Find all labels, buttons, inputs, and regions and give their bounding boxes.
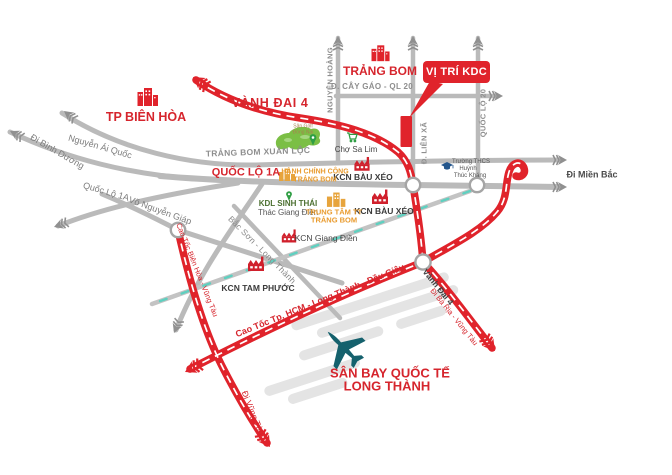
center-building-icon (327, 193, 345, 207)
place-label-kcn-giang-dien: KCN Giang Điền (295, 234, 358, 243)
school-label-line2: Huỳnh (459, 166, 476, 172)
city-icon-bien-hoa (138, 88, 159, 106)
road-label-nguyen-hoang: NGUYỄN HOÀNG (326, 47, 334, 113)
market-cart-icon (347, 133, 357, 142)
city-icon-trang-bom (372, 45, 390, 61)
place-label-trang-bom: TRẢNG BOM (343, 65, 417, 77)
road-label-vanh-dai-4-north: VÀNH ĐAI 4 (232, 97, 309, 110)
road-label-cay-gao: Đ. CÂY GÁO - QL 20 (331, 83, 413, 91)
place-label-tp-bien-hoa: TP BIÊN HÒA (106, 111, 186, 124)
place-label-hanh-chinh-line1: HÀNH CHÍNH CÔNG (281, 169, 348, 176)
school-label-line1: Trường THCS (452, 159, 490, 165)
factory-icon-tam-phuoc (248, 257, 264, 272)
airport-label-line2: LONG THÀNH (344, 380, 431, 393)
location-map: Nguyễn Ái Quốc Đi Bình Dương Quốc Lộ 1A … (0, 0, 672, 475)
place-label-cho-sa-lim: Chợ Sa Lim (335, 146, 378, 154)
road-label-quoc-lo-1a-red: QUỐC LỘ 1A (212, 168, 280, 179)
project-callout: VỊ TRÍ KDC (423, 61, 490, 83)
road-label-lien-xa: Đ. LIÊN XÃ (420, 122, 428, 164)
place-label-trung-tam-line2: TRẢNG BOM (311, 216, 357, 224)
road-label-quoc-lo-20: QUỐC LỘ 20 (479, 89, 487, 137)
factory-icon-bau-xeo-2 (372, 190, 388, 205)
project-callout-label: VỊ TRÍ KDC (426, 66, 487, 78)
place-label-kcn-tam-phuoc: KCN TAM PHƯỚC (221, 284, 294, 293)
golf-label-line2: Đồng Nai (293, 131, 314, 136)
school-label-line3: Thúc Kháng (454, 173, 486, 179)
place-label-hanh-chinh-line2: TRẢNG BOM (293, 177, 336, 184)
road-label-di-mien-bac: Đi Miền Bắc (566, 171, 617, 180)
place-label-kcn-bau-xeo-2: KCN BÀU XÉO (354, 207, 414, 216)
factory-icon-bau-xeo-1 (354, 157, 369, 171)
